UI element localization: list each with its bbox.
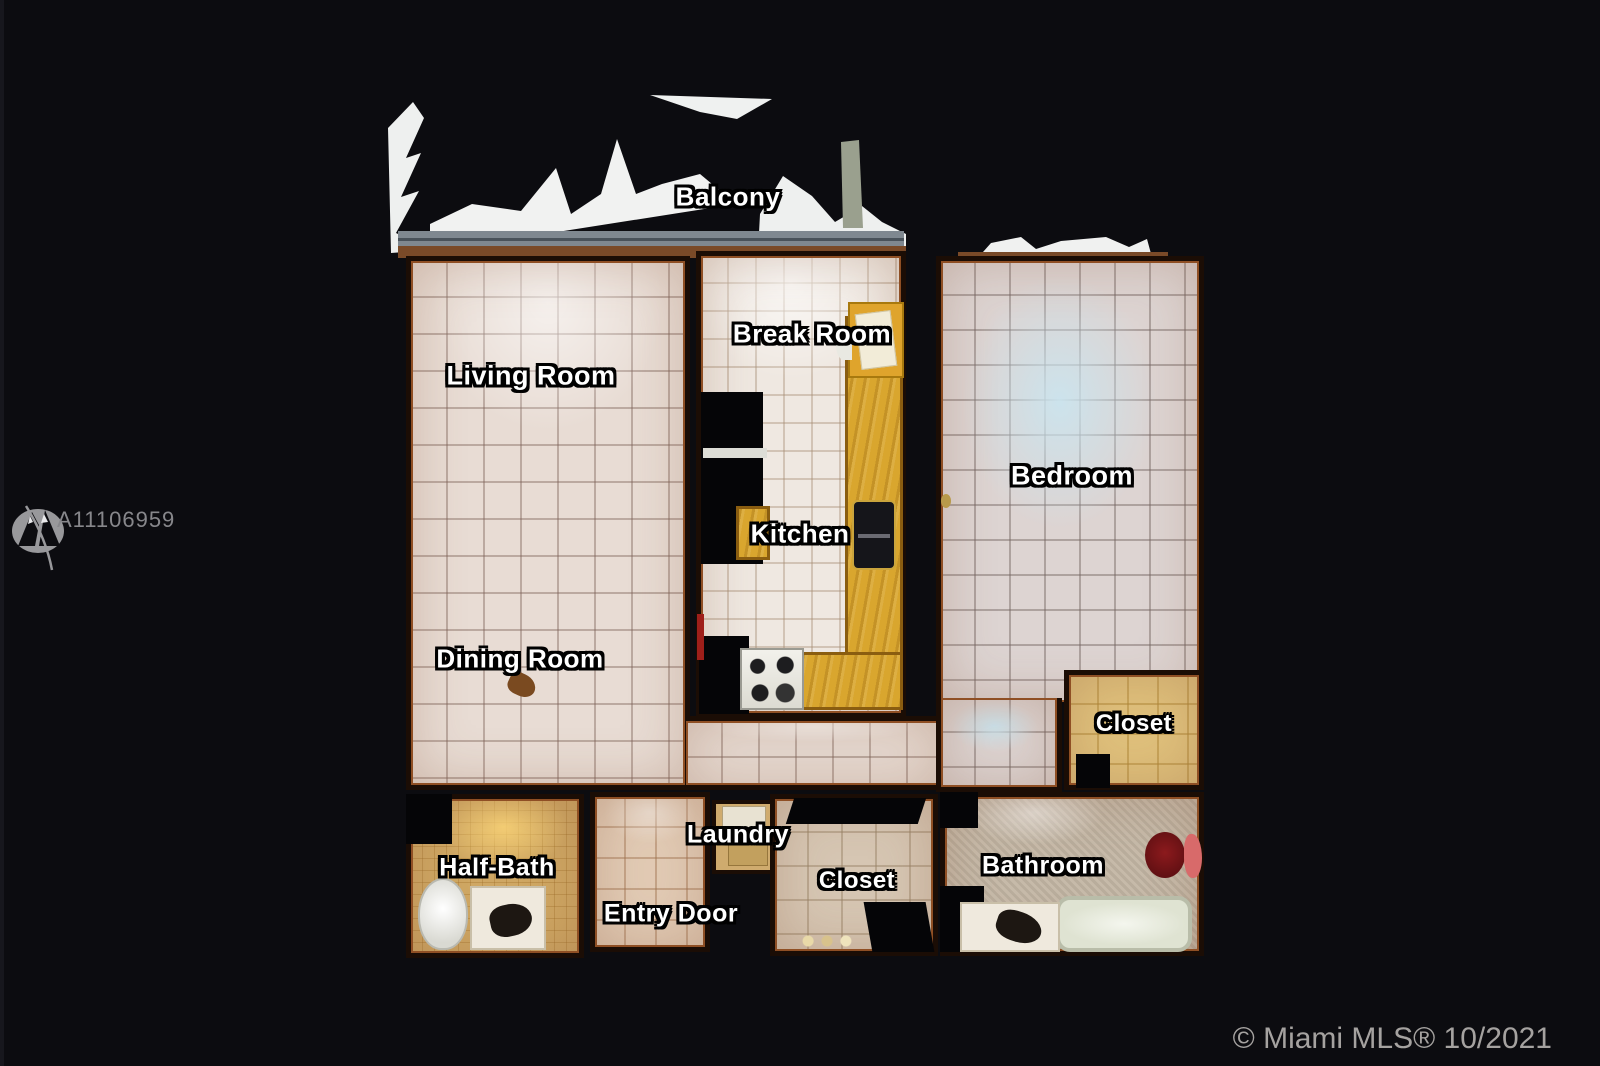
- listing-id-watermark: A11106959: [57, 507, 175, 533]
- room-label-closet-bottom: Closet: [819, 867, 895, 895]
- bedroom-door-handle: [941, 494, 951, 508]
- half-bath-toilet: [418, 878, 468, 950]
- closet-shoes: [800, 934, 854, 948]
- room-label-closet-bedroom: Closet: [1096, 710, 1172, 738]
- closet-hanging-clothes: [786, 798, 926, 824]
- bathtub: [1056, 896, 1192, 952]
- hallway-strip-floor: [686, 716, 939, 790]
- mls-copyright: © Miami MLS® 10/2021: [1233, 1022, 1552, 1056]
- room-label-entry-door: Entry Door: [604, 900, 738, 929]
- room-label-dining-room: Dining Room: [436, 644, 603, 675]
- room-label-laundry: Laundry: [687, 821, 789, 850]
- stove: [740, 648, 804, 710]
- bathroom-toilet: [1145, 832, 1185, 878]
- living-dining-room-floor: [406, 256, 690, 790]
- floorplan-image: Balcony Living Room Break Room Kitchen B…: [0, 0, 1600, 1066]
- bathroom-notch-1: [940, 792, 978, 828]
- room-label-bedroom: Bedroom: [1011, 461, 1133, 492]
- kitchen-shelf-edge: [703, 448, 767, 458]
- kitchen-red-door-edge: [697, 614, 704, 660]
- room-label-kitchen: Kitchen: [751, 519, 850, 550]
- room-label-balcony: Balcony: [676, 182, 781, 213]
- bathroom-red-object: [1184, 834, 1202, 878]
- room-label-bathroom: Bathroom: [982, 852, 1104, 881]
- room-label-half-bath: Half-Bath: [439, 854, 555, 883]
- kitchen-sink: [852, 500, 896, 570]
- half-bath-notch: [406, 794, 452, 844]
- bedroom-lower-floor: [936, 698, 1062, 792]
- room-label-break-room: Break Room: [733, 319, 891, 350]
- closet-notch: [1076, 754, 1110, 788]
- closet-floor-items: [864, 902, 935, 952]
- room-label-living-room: Living Room: [447, 361, 616, 392]
